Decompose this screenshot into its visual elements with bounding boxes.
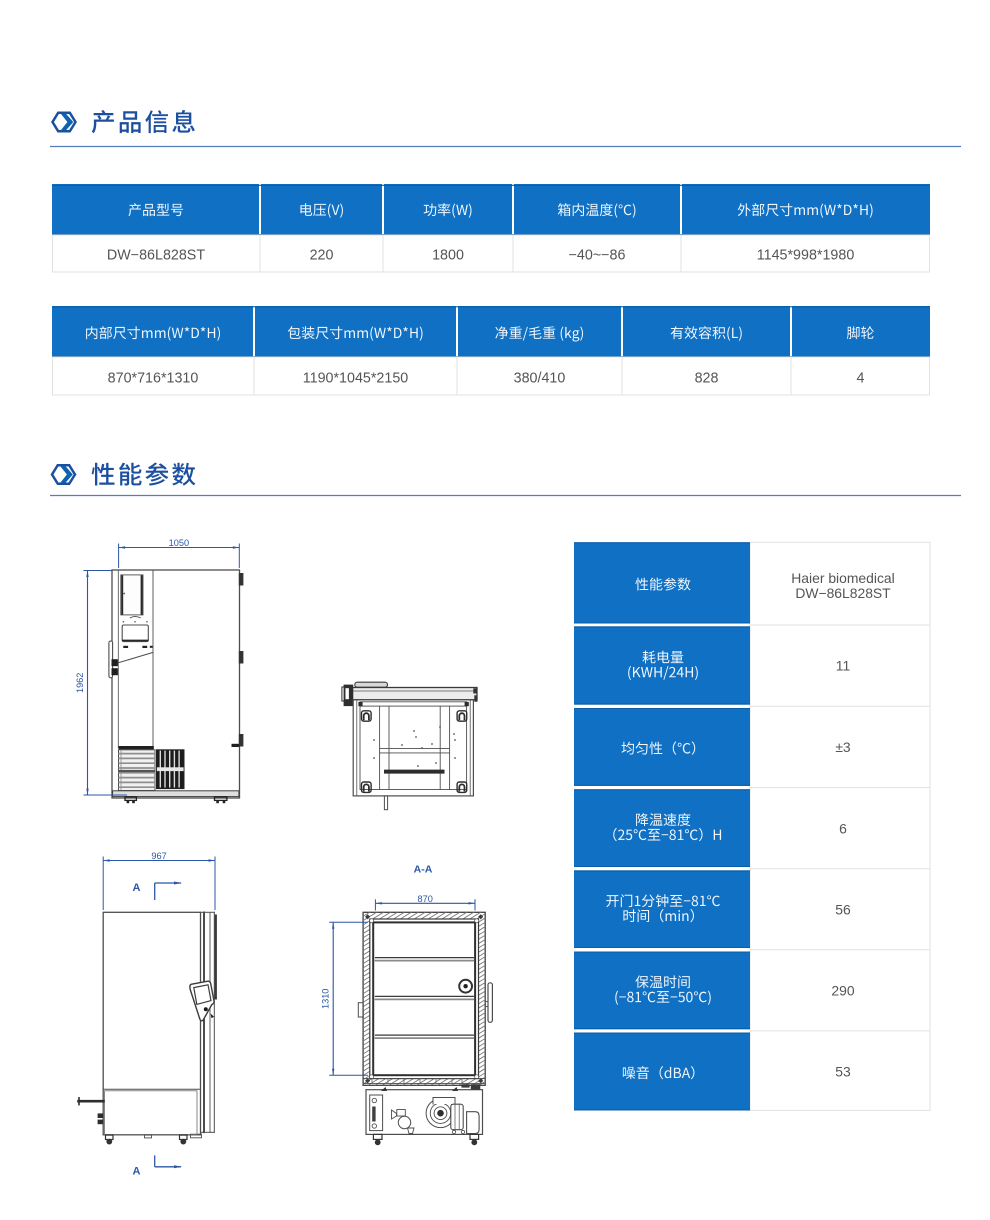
svg-text:53: 53	[835, 1064, 851, 1080]
svg-text:6: 6	[839, 820, 847, 836]
svg-text:A: A	[133, 1166, 141, 1178]
svg-text:1800: 1800	[432, 248, 464, 264]
svg-text:DW−86L828ST: DW−86L828ST	[795, 585, 891, 601]
svg-text:A: A	[133, 882, 141, 894]
svg-text:Haier biomedical: Haier biomedical	[791, 570, 894, 586]
svg-text:56: 56	[835, 901, 851, 917]
svg-text:11: 11	[836, 658, 851, 674]
svg-text:870*716*1310: 870*716*1310	[108, 371, 199, 387]
svg-text:1190*1045*2150: 1190*1045*2150	[303, 371, 409, 387]
svg-text:380/410: 380/410	[514, 371, 566, 387]
svg-text:1310: 1310	[321, 989, 331, 1009]
svg-text:870: 870	[418, 894, 433, 904]
svg-text:220: 220	[310, 248, 334, 264]
svg-text:−40~−86: −40~−86	[569, 248, 626, 264]
svg-text:1050: 1050	[169, 538, 189, 548]
svg-text:DW−86L828ST: DW−86L828ST	[107, 248, 205, 264]
svg-text:4: 4	[857, 371, 865, 387]
svg-text:1962: 1962	[75, 673, 85, 693]
svg-text:828: 828	[695, 371, 719, 387]
svg-text:290: 290	[831, 983, 854, 999]
svg-text:1145*998*1980: 1145*998*1980	[757, 248, 855, 264]
svg-text:967: 967	[151, 851, 166, 861]
svg-text:A-A: A-A	[414, 864, 433, 876]
svg-text:±3: ±3	[835, 739, 851, 755]
